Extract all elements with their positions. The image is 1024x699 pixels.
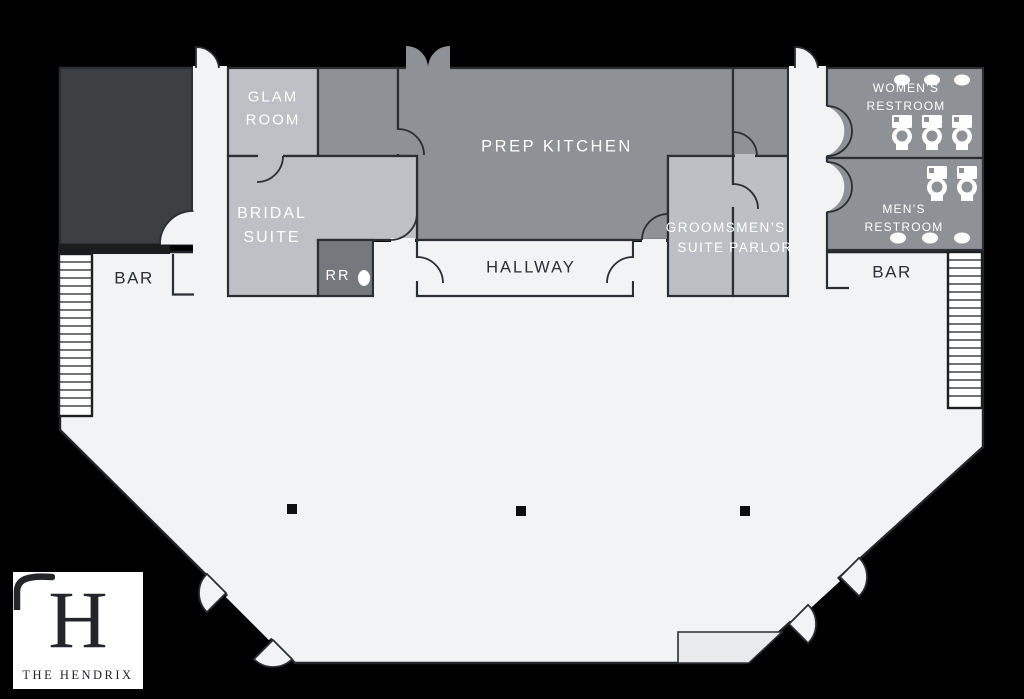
rr-toilet-icon [358, 270, 370, 286]
column-marker [516, 506, 526, 516]
unlabeled-room [318, 68, 398, 156]
kitchen-double-door [406, 46, 450, 68]
column-marker [740, 506, 750, 516]
bar-left-label: BAR [114, 265, 153, 291]
main-hall-floor [60, 252, 983, 663]
grooms-suite-label: GROOMS SUITE [666, 218, 737, 259]
hallway-label: HALLWAY [486, 256, 576, 281]
floor-plan: GLAM ROOM BRIDAL SUITE PREP KITCHEN HALL… [0, 0, 1024, 699]
stairs-left [59, 254, 92, 416]
vestibule-right [634, 242, 667, 295]
unlabeled-room-2 [733, 68, 788, 156]
logo-flourish-icon [13, 572, 55, 610]
entry-corridor-right [789, 66, 826, 256]
womens-restroom-label: WOMEN’S RESTROOM [847, 79, 965, 115]
bar-right-label: BAR [872, 259, 911, 285]
column-marker [287, 504, 297, 514]
stage [678, 632, 782, 663]
glam-room-label: GLAM ROOM [246, 87, 301, 132]
mens-parlor-label: MEN’S PARLOR [729, 218, 793, 259]
venue-name: THE HENDRIX [13, 668, 143, 683]
mens-restroom-label: MEN’S RESTROOM [844, 200, 964, 236]
entry-corridor-left [193, 66, 227, 256]
dark-room-thick-wall [58, 244, 170, 254]
rr-label: RR [326, 266, 351, 288]
bridal-suite-label: BRIDAL SUITE [237, 202, 307, 250]
venue-logo: H THE HENDRIX [13, 572, 143, 689]
stairs-right [948, 252, 982, 408]
prep-kitchen-label: PREP KITCHEN [481, 135, 633, 160]
vestibule-left [374, 242, 416, 295]
